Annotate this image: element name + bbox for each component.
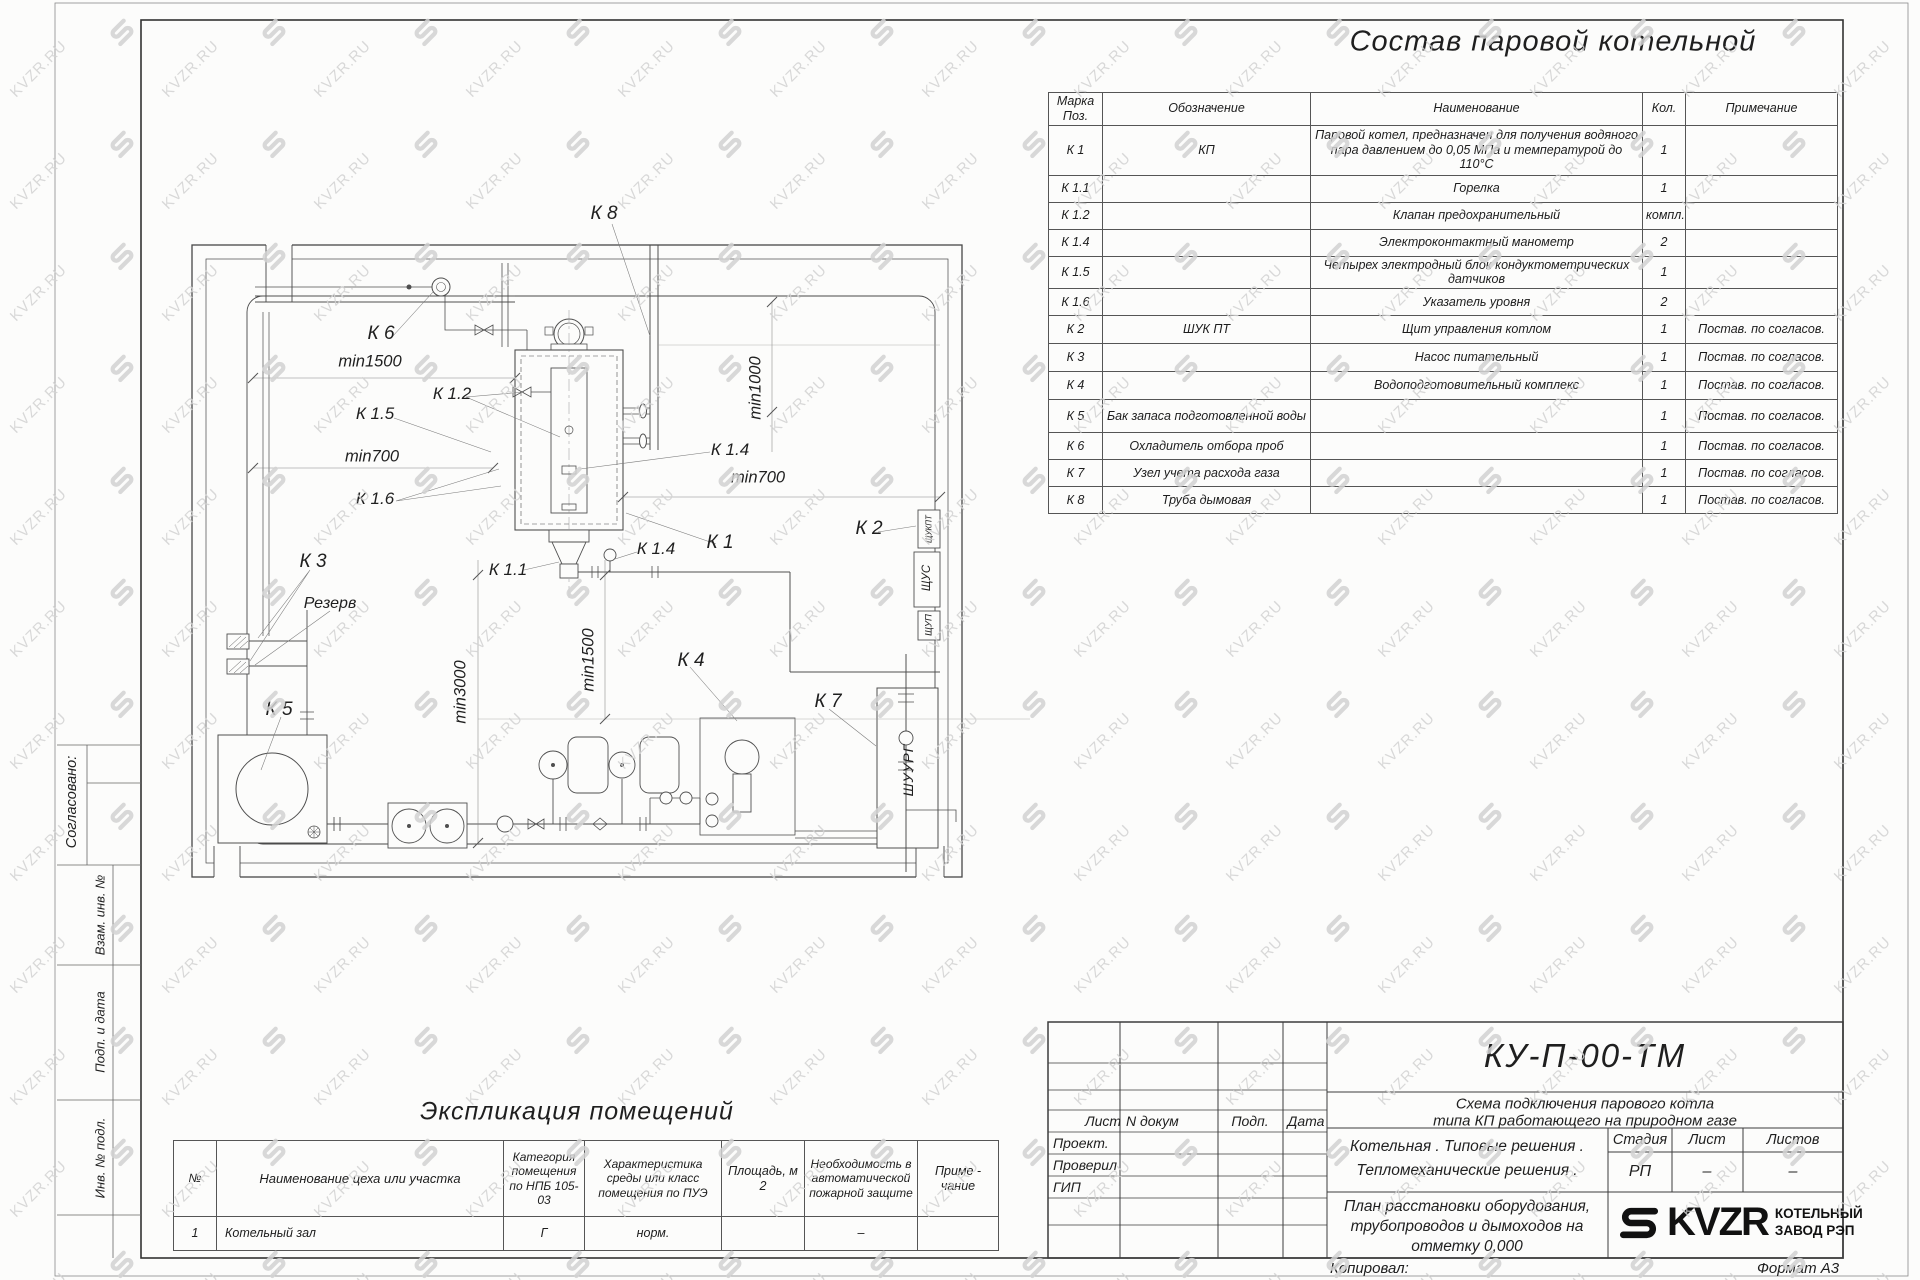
table-row: К 7 Узел учета расхода газа 1 Постав. по… (1049, 460, 1838, 487)
doc-subtitle-line2: типа КП работающего на природном газе (1433, 1113, 1737, 1130)
table-row: К 1.6 Указатель уровня 2 (1049, 289, 1838, 316)
panel-tag-shuurg: ШУУРГ (900, 744, 916, 797)
sheet-desc-line2: трубопроводов и дымоходов на (1351, 1218, 1584, 1236)
plan-dim-min1000: min1000 (747, 356, 766, 419)
plan-label-k1-6: К 1.6 (356, 489, 394, 509)
project-desc-line2: Тепломеханические решения . (1356, 1162, 1577, 1180)
role-checked: Проверил (1053, 1157, 1117, 1173)
table-row: К 1 КП Паровой котел, предназначен для п… (1049, 125, 1838, 175)
plan-dim-min700-b: min700 (731, 469, 785, 488)
plan-label-k1-5: К 1.5 (356, 404, 394, 424)
table-row: К 1.4 Электроконтактный манометр 2 (1049, 229, 1838, 256)
doc-number: КУ-П-00-ТМ (1484, 1037, 1686, 1075)
equipment-table: Марка Поз. Обозначение Наименование Кол.… (1048, 92, 1838, 514)
table-row: К 2 ШУК ПТ Щит управления котлом 1 Поста… (1049, 316, 1838, 344)
explication-table: № Наименование цеха или участка Категори… (173, 1140, 999, 1251)
sheet-value: – (1703, 1163, 1712, 1181)
plan-label-k3: К 3 (299, 551, 326, 573)
logo-brand-text: KVZR (1667, 1200, 1768, 1245)
role-gip: ГИП (1053, 1179, 1081, 1195)
table-row: К 6 Охладитель отбора проб 1 Постав. по … (1049, 433, 1838, 460)
logo-caption-line1: КОТЕЛЬНЫЙ (1775, 1206, 1863, 1221)
strip-label-inv: Инв. № подл. (93, 1118, 108, 1199)
table-header-row: Марка Поз. Обозначение Наименование Кол.… (1049, 93, 1838, 126)
table-row: К 1.1 Горелка 1 (1049, 175, 1838, 202)
page-title: Состав паровой котельной (1350, 26, 1757, 59)
plan-label-k1-2: К 1.2 (433, 384, 471, 404)
panel-tag-schus: ЩУС (921, 565, 933, 591)
project-desc-line1: Котельная . Типовые решения . (1350, 1138, 1584, 1156)
format-label: Формат А3 (1757, 1260, 1839, 1277)
plan-label-k5: К 5 (265, 699, 292, 721)
strip-label-agreed: Согласовано: (64, 756, 80, 848)
role-project: Проект. (1053, 1135, 1109, 1151)
col-header-sign: Подп. (1231, 1113, 1268, 1129)
stage-header: Стадия (1613, 1132, 1667, 1148)
plan-dim-min3000: min3000 (452, 660, 471, 723)
col-header: Марка Поз. (1049, 93, 1103, 126)
col-header-sheet: Лист (1085, 1113, 1121, 1129)
plan-label-reserve: Резерв (304, 595, 357, 613)
panel-tag-schukpt: ЩУКПТ (925, 515, 934, 543)
plan-label-k7: К 7 (814, 691, 841, 713)
copied-label: Копировал: (1330, 1260, 1409, 1277)
explication-title: Экспликация помещений (420, 1098, 734, 1127)
table-row: К 8 Труба дымовая 1 Постав. по согласов. (1049, 487, 1838, 514)
sheet-desc-line1: План расстановки оборудования, (1344, 1198, 1590, 1216)
plan-label-k6: К 6 (367, 323, 394, 345)
stage-value: РП (1629, 1163, 1651, 1181)
sheets-value: – (1789, 1163, 1798, 1181)
plan-label-k1-4-a: К 1.4 (711, 440, 749, 460)
table-header-row: № Наименование цеха или участка Категори… (174, 1141, 999, 1217)
plan-dim-min700-a: min700 (345, 448, 399, 467)
plan-label-k1-4-b: К 1.4 (637, 539, 675, 559)
table-row: К 4 Водоподготовительный комплекс 1 Пост… (1049, 372, 1838, 400)
panel-tag-schup: ЩУП (924, 614, 935, 636)
col-header-date: Дата (1288, 1113, 1325, 1129)
table-row: К 3 Насос питательный 1 Постав. по согла… (1049, 344, 1838, 372)
col-header: Примечание (1686, 93, 1838, 126)
table-row: К 5 Бак запаса подготовленной воды 1 Пос… (1049, 400, 1838, 433)
kvzr-coil-icon (1618, 1203, 1660, 1243)
doc-subtitle-line1: Схема подключения парового котла (1456, 1096, 1714, 1113)
col-header: Кол. (1643, 93, 1686, 126)
sheets-header: Листов (1767, 1132, 1820, 1148)
col-header: Наименование (1311, 93, 1643, 126)
plan-dim-min1500-b: min1500 (580, 628, 599, 691)
sheet-header: Лист (1688, 1132, 1725, 1148)
plan-label-k1-1: К 1.1 (489, 560, 527, 580)
table-row: К 1.2 Клапан предохранительный компл. (1049, 202, 1838, 229)
plan-dim-min1500-a: min1500 (338, 353, 401, 372)
company-logo: KVZR КОТЕЛЬНЫЙ ЗАВОД РЭП (1618, 1200, 1863, 1245)
plan-label-k2: К 2 (855, 518, 882, 540)
logo-caption-line2: ЗАВОД РЭП (1775, 1223, 1855, 1238)
plan-label-k4: К 4 (677, 650, 704, 672)
plan-label-k1: К 1 (706, 532, 733, 554)
col-header-doc: N докум (1126, 1113, 1179, 1129)
drawing-sheet: Состав паровой котельной Марка Поз. Обоз… (0, 0, 1920, 1280)
sheet-desc-line3: отметку 0,000 (1411, 1238, 1523, 1256)
strip-label-vzam: Взам. инв. № (93, 875, 108, 955)
logo-caption: КОТЕЛЬНЫЙ ЗАВОД РЭП (1775, 1206, 1863, 1240)
table-row: К 1.5 Четырех электродный блок кондуктом… (1049, 256, 1838, 289)
plan-label-k8: К 8 (590, 203, 617, 225)
col-header: Обозначение (1103, 93, 1311, 126)
table-row: 1 Котельный зал Г норм. – (174, 1217, 999, 1251)
strip-label-podp: Подп. и дата (93, 991, 108, 1072)
